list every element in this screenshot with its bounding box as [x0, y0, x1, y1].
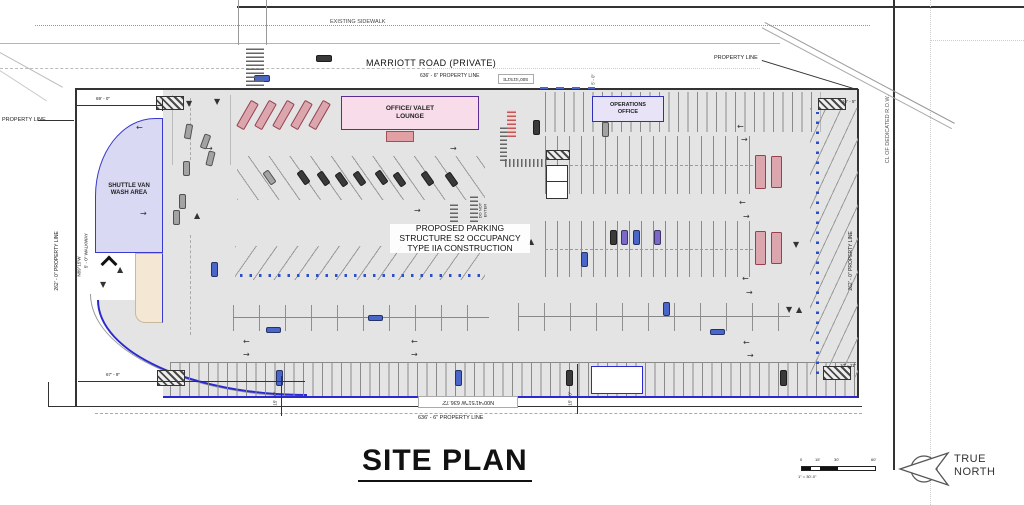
row-centerline — [233, 317, 489, 318]
shuttle-van — [771, 232, 782, 264]
car — [663, 302, 670, 316]
dim-262-left: 262' - 0" PROPERTY LINE — [55, 201, 61, 321]
car — [266, 327, 281, 333]
flow-arrow: → — [747, 352, 754, 360]
shuttle-wash-label: SHUTTLE VAN WASH AREA — [98, 183, 160, 197]
walkway-chevron — [101, 256, 118, 273]
equipment-pad — [546, 150, 570, 160]
dim-262-right: 262' - 0" PROPERTY LINE — [849, 201, 855, 321]
flow-arrow: ▲ — [194, 212, 200, 220]
car — [621, 230, 628, 245]
row-dashed-centerline — [545, 249, 753, 250]
bearing-bottom-box: N00°41'51"W 636.72' — [418, 396, 518, 408]
flow-arrow: → — [411, 351, 418, 359]
flow-arrow: → — [741, 136, 748, 144]
car — [173, 210, 180, 225]
flow-arrow: ▼ — [786, 306, 792, 314]
flow-arrow: → — [414, 207, 421, 215]
car — [654, 230, 661, 245]
dim-10-11: 10' - 11" — [840, 363, 856, 368]
gate-booth — [157, 370, 185, 386]
car — [633, 230, 640, 245]
car — [211, 262, 218, 277]
dim-636-bottom: 636' - 6" PROPERTY LINE — [418, 415, 483, 421]
crosswalk-hatch — [450, 203, 458, 222]
dim-tick — [281, 376, 282, 416]
bearing-left-label: N89°15'W — [76, 222, 81, 312]
flow-arrow: → — [243, 351, 250, 359]
dim-5-0: 5' - 0" — [592, 59, 597, 99]
dim-67: 67' - 9" — [106, 372, 120, 377]
scale-tick-label: 30' — [834, 458, 839, 463]
scale-caption: 1" = 30'-0" — [798, 475, 816, 480]
scale-bar — [801, 466, 876, 471]
bearing-top-box: S00°41'51"E — [498, 74, 534, 84]
flow-arrow: ← — [739, 199, 746, 207]
crosswalk-hatch — [246, 46, 264, 86]
dim-10-5: 10' - 5" — [842, 99, 856, 104]
cl-dedicated-row-label: CL OF DEDICATED R.O.W. — [885, 69, 891, 189]
dim-636-top: 636' - 6" PROPERTY LINE — [420, 74, 480, 80]
flow-arrow: ▲ — [796, 306, 802, 314]
true-north-label-1: TRUE — [954, 453, 986, 466]
office-valet-building: OFFICE/ VALET LOUNGE — [341, 96, 479, 130]
do-not-enter-sign: DO NOT ENTER — [478, 196, 487, 226]
scale-bar-segment — [820, 467, 838, 470]
car — [455, 370, 462, 386]
flow-arrow: → — [743, 213, 750, 221]
flow-arrow: → — [746, 289, 753, 297]
flow-arrow: ← — [136, 124, 143, 132]
stair-core-divider — [546, 181, 568, 182]
crosswalk-hatch — [505, 159, 547, 167]
parking-row-center-east — [518, 303, 790, 331]
dim-69: 69' - 0" — [96, 96, 110, 101]
lane-dashed-divider — [190, 235, 191, 335]
flow-arrow: ▼ — [100, 281, 106, 289]
dim-15-left: 15' - 0" — [272, 374, 277, 424]
row-dashed-centerline — [545, 165, 753, 166]
gate-booth — [156, 96, 184, 110]
leader-line — [38, 120, 74, 121]
flow-arrow: ← — [243, 338, 250, 346]
flow-arrow: ▲ — [117, 266, 123, 274]
car — [316, 55, 332, 62]
scale-bar-segment — [811, 467, 820, 470]
property-jog-line — [48, 382, 49, 406]
scale-tick-label: 0 — [800, 458, 802, 463]
tan-island — [135, 253, 163, 323]
dim-tick — [75, 99, 76, 111]
car — [533, 120, 540, 135]
loading-bumper — [386, 131, 414, 142]
car — [610, 230, 617, 245]
car — [179, 194, 186, 209]
page-title: SITE PLAN — [358, 444, 532, 482]
crosswalk-hatch-red — [507, 110, 516, 137]
west-road-curve-line — [0, 52, 63, 88]
flow-arrow: ← — [411, 338, 418, 346]
car — [780, 370, 787, 386]
approach-lane-line — [266, 0, 267, 45]
car — [602, 122, 609, 137]
shuttle-van — [755, 155, 766, 189]
flow-arrow: → — [206, 145, 213, 153]
scale-tick-label: 15' — [815, 458, 820, 463]
stair-core — [546, 165, 568, 199]
trash-enclosure — [591, 366, 643, 394]
approach-lane-line — [238, 0, 239, 45]
scale-bar-segment — [802, 467, 811, 470]
shuttle-van — [755, 231, 766, 265]
car — [710, 329, 725, 335]
scale-tick-label: 60' — [871, 458, 876, 463]
row-dotted-line — [930, 0, 931, 505]
stall-blue-dots-vertical — [816, 112, 819, 374]
dim-15-right: 15' - 0" — [567, 374, 572, 424]
row-centerline — [518, 316, 790, 317]
flow-arrow: ← — [737, 123, 744, 131]
existing-sidewalk-label: EXISTING SIDEWALK — [330, 19, 385, 25]
car — [368, 315, 383, 321]
road-south-edge-line — [0, 43, 780, 44]
bearing-bottom-text: N00°41'51"W 636.72' — [442, 399, 494, 405]
site-plan-canvas: EXISTING SIDEWALK MARRIOTT ROAD (PRIVATE… — [0, 0, 1024, 505]
structure-note: PROPOSED PARKING STRUCTURE S2 OCCUPANCY … — [390, 224, 530, 253]
flow-arrow: ← — [742, 275, 749, 283]
dim-line — [78, 381, 305, 382]
dim-line — [75, 105, 163, 106]
property-line-bottom-dashed — [95, 413, 862, 414]
dim-tick — [577, 364, 578, 414]
road-top-edge-line — [237, 6, 1024, 8]
dedicated-row-centerline — [893, 0, 895, 470]
property-boundary-top — [75, 88, 858, 90]
shuttle-van — [771, 156, 782, 188]
flow-arrow: ▼ — [793, 241, 799, 249]
marriott-road-label: MARRIOTT ROAD (PRIVATE) — [366, 58, 496, 68]
scale-bar-segment — [838, 467, 875, 470]
walkway-dim-label: 5' - 0" WALKWAY — [83, 206, 88, 296]
flow-arrow: ▼ — [214, 98, 220, 106]
operations-office-building: OPERATIONS OFFICE — [592, 96, 664, 122]
bearing-top-text: S00°41'51"E — [503, 77, 528, 82]
flow-arrow: ▼ — [186, 100, 192, 108]
car — [581, 252, 588, 267]
stall-blue-dots — [240, 274, 482, 277]
flow-arrow: → — [450, 145, 457, 153]
parking-row-north-east — [545, 92, 821, 132]
top-edge-blue-dashes — [540, 87, 595, 89]
property-line-label-topright: PROPERTY LINE — [714, 55, 758, 61]
true-north-icon — [898, 450, 952, 488]
dim-tick — [162, 99, 163, 111]
car — [183, 161, 190, 176]
entrance-lane-line — [230, 95, 231, 165]
sidewalk-dotted-line — [35, 25, 870, 26]
true-north-label-2: NORTH — [954, 466, 995, 479]
flow-arrow: → — [140, 210, 147, 218]
flow-arrow: ← — [743, 339, 750, 347]
row-dotted-line-horizontal — [930, 40, 1024, 41]
crosswalk-hatch — [500, 127, 507, 161]
